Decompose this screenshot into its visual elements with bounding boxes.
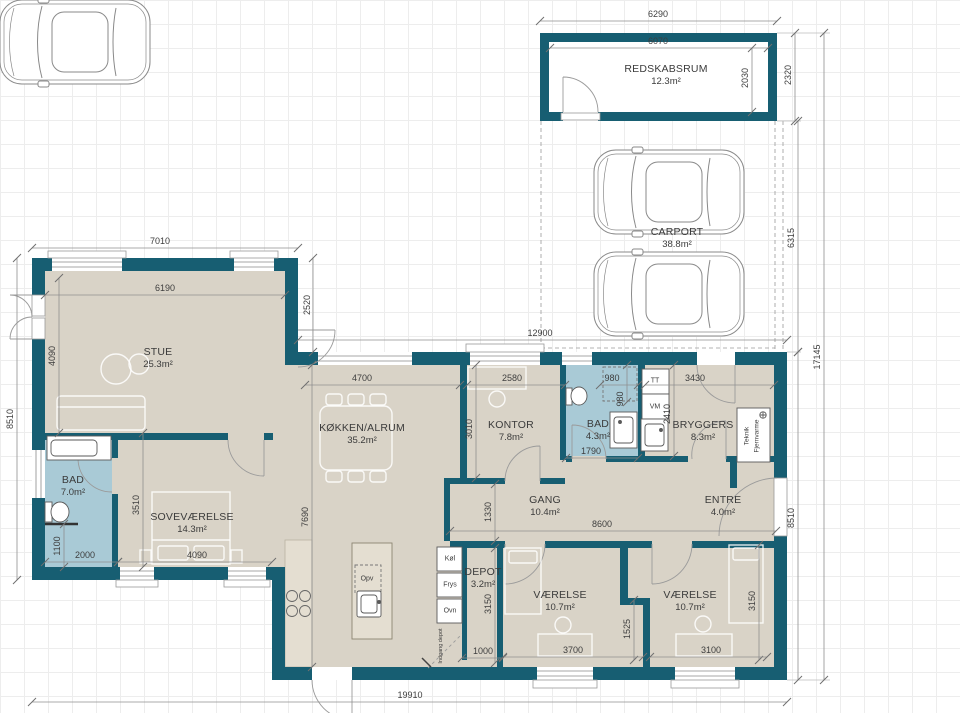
room-label-bad-1: BAD4.3m² (586, 418, 610, 442)
room-name: ENTRE (705, 494, 742, 507)
room-label-stue: STUE25.3m² (143, 346, 173, 370)
room-area: 4.3m² (586, 431, 610, 442)
dimension-label: 7010 (150, 236, 170, 246)
dimension-label: 1525 (622, 619, 632, 639)
dimension-label: 3150 (747, 591, 757, 611)
dimension-label: 2410 (662, 404, 672, 424)
dimension-label: 980 (604, 373, 619, 383)
room-name: BAD (62, 474, 84, 487)
dimension-label: 2320 (783, 65, 793, 85)
room-name: REDSKABSRUM (624, 63, 707, 76)
room-area: 12.3m² (651, 76, 681, 87)
dimension-label: 6070 (648, 36, 668, 46)
room-area: 3.2m² (471, 579, 495, 590)
dimension-label: 3700 (563, 645, 583, 655)
room-label-gang: GANG10.4m² (529, 494, 561, 518)
room-area: 8.3m² (691, 432, 715, 443)
floor-plan: REDSKABSRUM12.3m²CARPORT38.8m²STUE25.3m²… (0, 0, 960, 713)
room-label-bad-2: BAD7.0m² (61, 474, 85, 498)
room-label-entre: ENTRE4.0m² (705, 494, 742, 518)
annotation-label: VM (650, 404, 661, 411)
room-label-redskabsrum: REDSKABSRUM12.3m² (624, 63, 707, 87)
room-area: 38.8m² (662, 239, 692, 250)
dimension-label: 17145 (812, 344, 822, 369)
room-name: GANG (529, 494, 561, 507)
room-name: SOVEVÆRELSE (150, 511, 233, 524)
room-label-sovevaerelse: SOVEVÆRELSE14.3m² (150, 511, 233, 535)
dimension-label: 6190 (155, 283, 175, 293)
room-name: KONTOR (488, 419, 534, 432)
room-area: 10.7m² (545, 602, 575, 613)
dimension-label: 4700 (352, 373, 372, 383)
dimension-label: 3430 (685, 373, 705, 383)
room-name: DEPOT (464, 566, 501, 579)
annotation-label: Teknik (744, 427, 751, 445)
annotation-label: Ovn (444, 608, 457, 615)
dimension-label: 6315 (786, 228, 796, 248)
room-name: BAD (587, 418, 609, 431)
room-area: 10.7m² (675, 602, 705, 613)
annotation-label: Køl (445, 556, 456, 563)
dimension-label: 1000 (473, 646, 493, 656)
annotation-label: Opv (361, 576, 374, 583)
room-name: VÆRELSE (663, 589, 716, 602)
room-label-koekken-alrum: KØKKEN/ALRUM35.2m² (319, 422, 405, 446)
room-label-vaerelse-2: VÆRELSE10.7m² (663, 589, 716, 613)
room-area: 10.4m² (530, 507, 560, 518)
dimension-label: 7690 (300, 507, 310, 527)
annotation-label: Indgang depot (438, 628, 444, 663)
dimension-label: 980 (615, 391, 625, 406)
dimension-label: 3100 (701, 645, 721, 655)
dimension-label: 4090 (187, 550, 207, 560)
dimension-label: 4090 (47, 346, 57, 366)
dimension-label: 12900 (527, 328, 552, 338)
dimension-label: 2030 (740, 68, 750, 88)
room-area: 25.3m² (143, 359, 173, 370)
dimension-label: 19910 (397, 690, 422, 700)
dimension-label: 3510 (131, 495, 141, 515)
room-name: BRYGGERS (673, 419, 734, 432)
room-area: 7.8m² (499, 432, 523, 443)
dimension-label: 2000 (75, 550, 95, 560)
dimension-label: 8510 (5, 409, 15, 429)
dimension-label: 6290 (648, 9, 668, 19)
dimension-label: 8510 (786, 508, 796, 528)
room-label-bryggers: BRYGGERS8.3m² (673, 419, 734, 443)
room-area: 14.3m² (177, 524, 207, 535)
room-area: 7.0m² (61, 487, 85, 498)
room-area: 4.0m² (711, 507, 735, 518)
dimension-label: 1330 (483, 502, 493, 522)
room-label-kontor: KONTOR7.8m² (488, 419, 534, 443)
room-name: KØKKEN/ALRUM (319, 422, 405, 435)
room-label-carport: CARPORT38.8m² (651, 226, 704, 250)
dimension-label: 3150 (483, 594, 493, 614)
dimension-label: 1790 (581, 446, 601, 456)
dimension-label: 2580 (502, 373, 522, 383)
dimension-label: 8600 (592, 519, 612, 529)
annotation-label: Fjernvarme (754, 420, 761, 453)
annotation-label: TT (651, 378, 660, 385)
dimension-label: 2520 (302, 295, 312, 315)
room-name: VÆRELSE (533, 589, 586, 602)
room-area: 35.2m² (347, 435, 377, 446)
room-name: CARPORT (651, 226, 704, 239)
dimension-label: 3010 (464, 419, 474, 439)
dimension-label: 1100 (52, 536, 62, 555)
annotation-label: Frys (443, 582, 457, 589)
room-label-depot: DEPOT3.2m² (464, 566, 501, 590)
room-label-vaerelse-1: VÆRELSE10.7m² (533, 589, 586, 613)
room-name: STUE (144, 346, 173, 359)
